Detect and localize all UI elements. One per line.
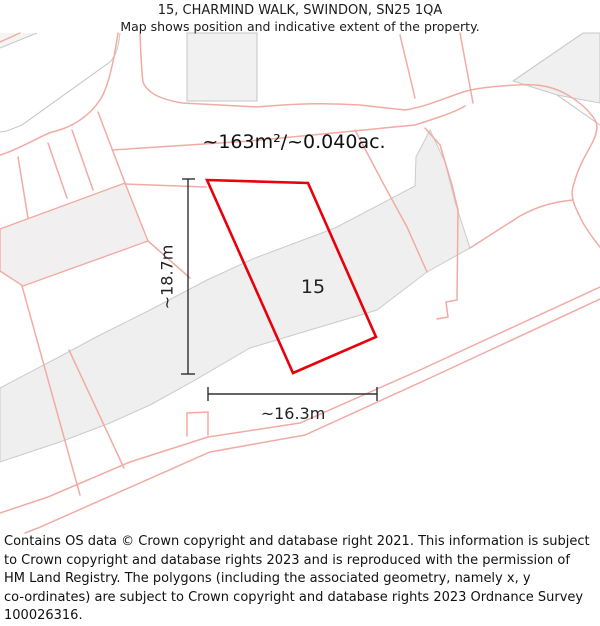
footer-line: to Crown copyright and database rights 2… [4, 552, 596, 571]
area-label: ~163m²/~0.040ac. [148, 131, 440, 153]
footer-line: co-ordinates) are subject to Crown copyr… [4, 589, 596, 608]
copyright-footer: Contains OS data © Crown copyright and d… [4, 533, 596, 626]
map-subtitle: Map shows position and indicative extent… [0, 19, 600, 35]
title-block: 15, CHARMIND WALK, SWINDON, SN25 1QA Map… [0, 0, 600, 35]
map-title: 15, CHARMIND WALK, SWINDON, SN25 1QA [0, 0, 600, 19]
footer-line: 100026316. [4, 607, 596, 626]
horizontal-dimension-label: ~16.3m [223, 404, 363, 423]
building-top-center [187, 33, 257, 101]
plot-number-label: 15 [293, 276, 333, 298]
footer-line: HM Land Registry. The polygons (includin… [4, 570, 596, 589]
vertical-dimension-label: ~18.7m [158, 245, 177, 310]
footer-line: Contains OS data © Crown copyright and d… [4, 533, 596, 552]
property-map [0, 0, 600, 625]
